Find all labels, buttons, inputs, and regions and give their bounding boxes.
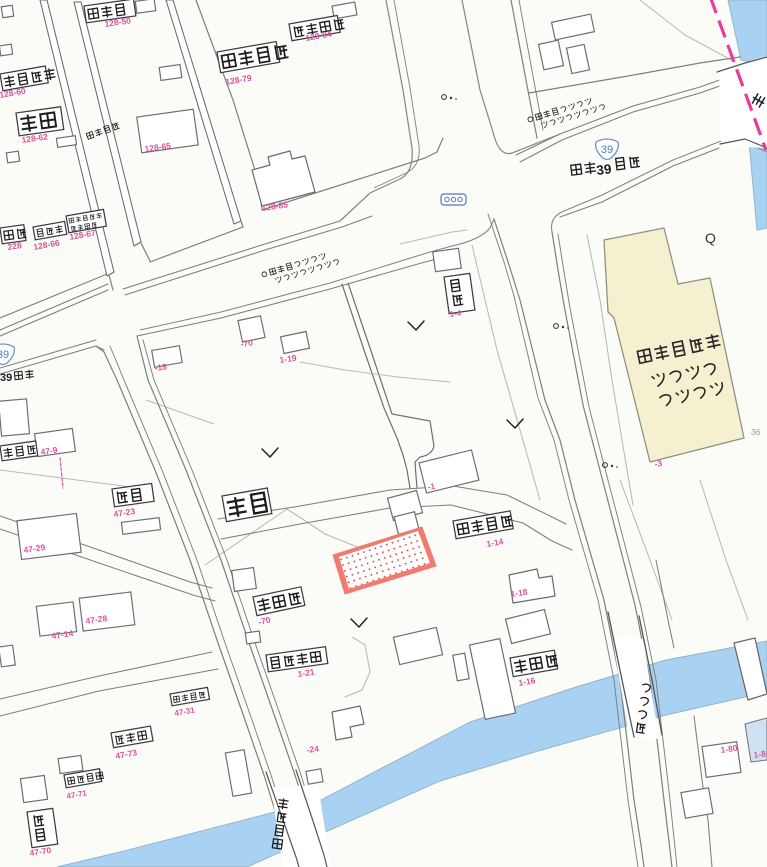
svg-text:39: 39 (601, 144, 613, 156)
svg-text:1-8: 1-8 (753, 748, 767, 760)
svg-text:39: 39 (0, 372, 12, 384)
svg-text:39: 39 (0, 349, 9, 361)
svg-text:-70: -70 (240, 337, 254, 349)
svg-text:-24: -24 (306, 743, 320, 755)
svg-text:1-4: 1-4 (449, 308, 462, 319)
svg-text:-18: -18 (154, 361, 168, 373)
svg-text:228: 228 (7, 240, 23, 252)
svg-text:Q: Q (705, 230, 716, 246)
svg-text:36: 36 (751, 427, 761, 437)
svg-text:39: 39 (596, 161, 613, 178)
